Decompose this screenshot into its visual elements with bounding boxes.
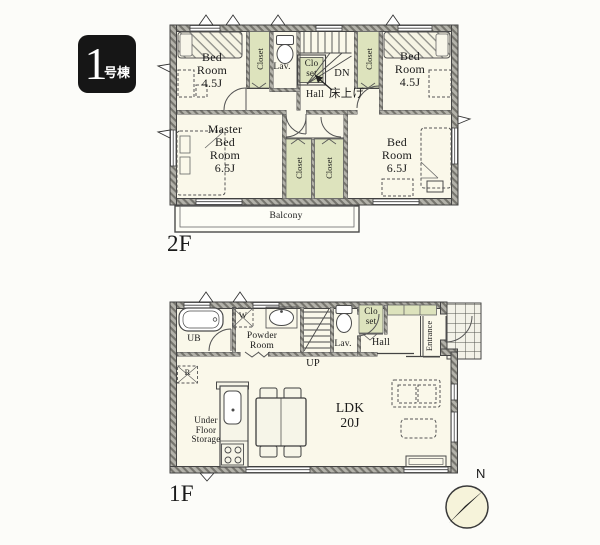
bedroom-nw-label: Bed Room 4.5J [183, 51, 241, 90]
compass-icon [446, 486, 488, 528]
hall-1f-label: Hall [367, 338, 395, 349]
stairs-down-label: DN [330, 68, 354, 79]
under-floor-storage-label: Under Floor Storage [184, 416, 228, 445]
closet-nw-label: Closet [255, 48, 265, 70]
bathtub-icon [179, 308, 223, 331]
floor-2f-title: 2F [167, 232, 192, 257]
balcony-label: Balcony [255, 211, 317, 221]
floor-1f-title: 1F [169, 482, 194, 507]
lavatory-2f-label: Lav. [268, 62, 296, 72]
lavatory-1f-label: Lav. [329, 339, 357, 349]
floor-1f-plan [170, 292, 481, 481]
closet-master-label: Closet [294, 157, 304, 179]
stairs-up-label: UP [301, 358, 325, 369]
master-bedroom-label: Master Bed Room 6.5J [200, 123, 250, 175]
raised-floor-note: 床上げ [329, 88, 364, 100]
closet-se-label: Closet [324, 157, 334, 179]
compass-north-label: N [476, 467, 486, 481]
shoe-cabinet-area [388, 305, 437, 315]
bedroom-se-label: Bed Room 6.5J [371, 136, 423, 175]
entrance-label: Entrance [424, 321, 434, 351]
hall-closet-1f-label: Clo set [359, 307, 383, 326]
toilet-2f-icon [277, 36, 294, 64]
floor-plan-page: 1 号棟 Bed Room 4.5J Closet Lav. Clo set D… [0, 0, 600, 545]
bedroom-ne-label: Bed Room 4.5J [381, 50, 439, 89]
dining-table-icon [256, 388, 306, 457]
toilet-1f-icon [336, 306, 352, 333]
ldk-label: LDK 20J [329, 401, 371, 430]
hall-closet-2f-label: Clo set [300, 59, 323, 78]
unit-bath-label: UB [180, 334, 208, 344]
hall-2f-label: Hall [301, 90, 329, 101]
powder-room-label: Powder Room [239, 331, 285, 352]
building-number-suffix: 号棟 [104, 62, 130, 81]
washer-mark: W [233, 311, 253, 320]
closet-ne-label: Closet [364, 48, 374, 70]
refrigerator-mark: R [177, 368, 198, 377]
